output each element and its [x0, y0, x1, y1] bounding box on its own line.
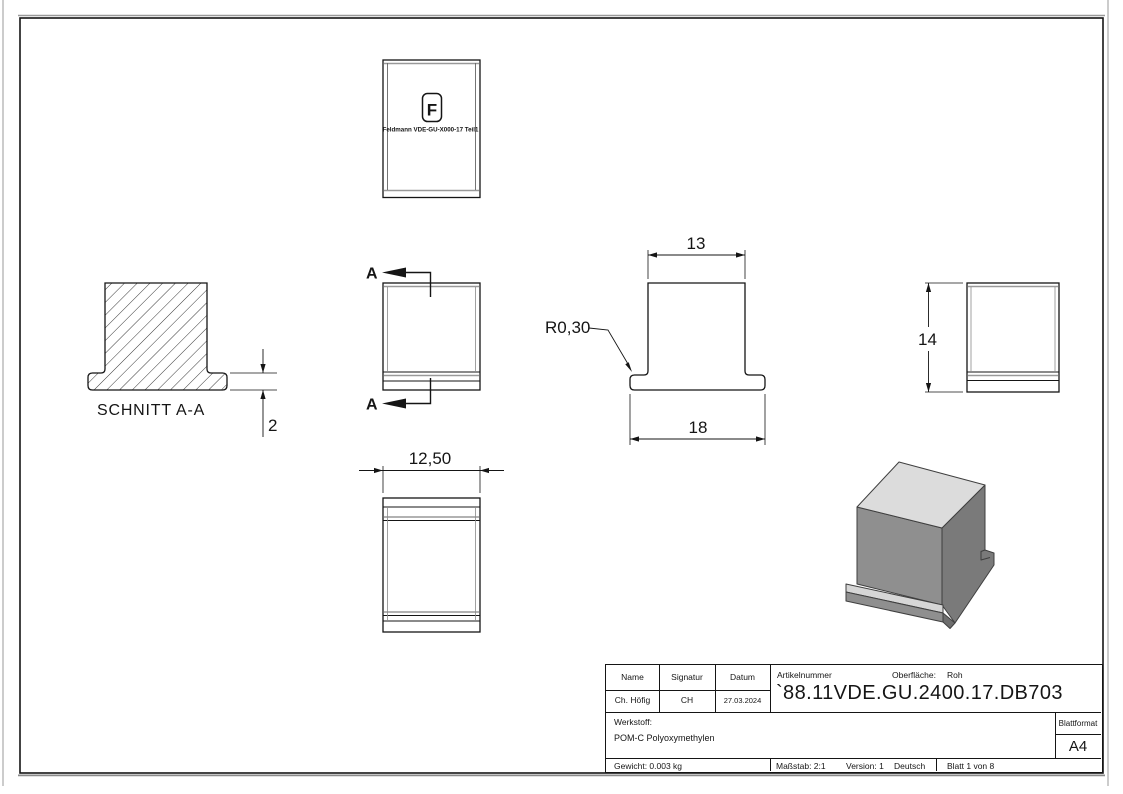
cut-letter-bottom: A: [366, 397, 378, 414]
dim-2-text: 2: [268, 416, 277, 435]
feldmann-logo: F: [423, 94, 442, 122]
artikelnummer-label: Artikelnummer: [777, 670, 832, 680]
section-view: SCHNITT A-A 2: [88, 283, 277, 437]
dim-18-text: 18: [689, 418, 708, 437]
dim-13-text: 13: [687, 234, 706, 253]
radius-text: R0,30: [545, 318, 590, 337]
dim-flange-width: 18: [630, 394, 765, 445]
massstab-value: Maßstab: 2:1: [776, 761, 826, 771]
radius-callout: R0,30: [545, 318, 632, 372]
name-label: Name: [606, 672, 659, 682]
version-value: Version: 1: [846, 761, 884, 771]
isometric-view: [846, 462, 994, 629]
sprache-value: Deutsch: [894, 761, 925, 771]
dim-height: 14: [918, 283, 963, 392]
section-label: SCHNITT A-A: [97, 402, 205, 419]
signatur-label: Signatur: [659, 672, 715, 682]
dim-1250-text: 12,50: [409, 449, 452, 468]
logo-caption-text: Feldmann VDE-GU-X000-17 Teil1: [383, 127, 479, 134]
blattformat-value: A4: [1055, 738, 1101, 755]
dim-depth: 12,50: [359, 449, 504, 493]
top-view: F Feldmann VDE-GU-X000-17 Teil1: [383, 60, 480, 198]
oberflaeche-value: Roh: [947, 670, 963, 680]
artikelnummer-value: `88.11VDE.GU.2400.17.DB703: [776, 682, 1063, 705]
datum-value: 27.03.2024: [715, 696, 770, 705]
title-block: Name Signatur Datum Ch. Höfig CH 27.03.2…: [605, 664, 1103, 773]
oberflaeche-label: Oberfläche:: [892, 670, 936, 680]
dim-body-width: 13: [648, 234, 745, 279]
werkstoff-label: Werkstoff:: [614, 717, 652, 727]
datum-label: Datum: [715, 672, 770, 682]
bottom-view: 12,50: [359, 449, 504, 632]
blatt-value: Blatt 1 von 8: [947, 761, 994, 771]
logo-letter: F: [427, 101, 437, 120]
gewicht-value: Gewicht: 0.003 kg: [614, 761, 682, 771]
right-view: 14: [918, 283, 1059, 392]
dim-flange-thickness: 2: [230, 349, 277, 437]
werkstoff-value: POM-C Polyoxymethylen: [614, 733, 715, 743]
cut-letter-top: A: [366, 266, 378, 283]
side-view: 13 18 R0,30: [545, 234, 765, 445]
signatur-value: CH: [659, 695, 715, 705]
drawing-sheet: F Feldmann VDE-GU-X000-17 Teil1 SCHNITT …: [0, 0, 1123, 794]
name-value: Ch. Höfig: [606, 695, 659, 705]
dim-14-text: 14: [918, 330, 937, 349]
blattformat-label: Blattformat: [1055, 719, 1101, 728]
section-hatched-profile: [88, 283, 227, 390]
front-view: A A: [366, 266, 480, 414]
side-profile: [630, 283, 765, 390]
